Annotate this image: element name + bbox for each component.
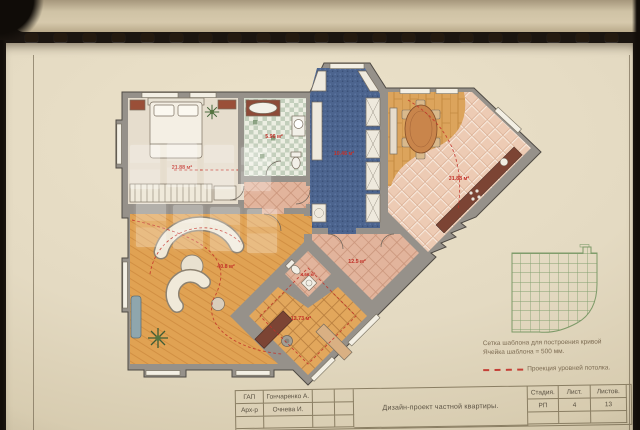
stamp-stage-label: Стадия.: [528, 386, 559, 399]
previous-page-edge: [14, 0, 640, 32]
binding-hole: [344, 33, 357, 42]
binding-hole: [431, 33, 444, 42]
binding-hole: [315, 33, 328, 42]
stamp-empty-cell: [236, 417, 264, 429]
binding-hole: [373, 33, 386, 42]
legend-ceiling-note: Проекция уровней потолка.: [527, 363, 610, 373]
stamp-empty-cell: [313, 403, 335, 416]
legend: Сетка шаблона для построения кривой Ячей…: [483, 337, 640, 374]
stamp-sheets-label: Листов.: [591, 385, 627, 399]
binding-hole: [605, 33, 618, 42]
photo-edge-left: [0, 40, 6, 430]
stamp-sheet-label: Лист.: [559, 386, 591, 400]
photo-corner-shadow: [0, 0, 46, 40]
binding-hole: [141, 33, 154, 42]
binding-hole: [170, 33, 183, 42]
stamp-sheet-value: 4: [559, 399, 591, 413]
binding-hole: [286, 33, 299, 42]
area-label-wc: 4.66 м²: [301, 272, 316, 277]
area-label-study: 12.73 м²: [291, 316, 312, 322]
stamp-sheets-value: 13: [591, 398, 627, 412]
sheet-frame-right: [629, 55, 630, 430]
stamp-empty-cell: [559, 412, 591, 425]
area-label-kitchen: 31.88 м²: [449, 176, 470, 182]
curve-template-grid: [511, 244, 603, 339]
stamp-stage-value: РП: [528, 399, 559, 412]
binding-hole: [228, 33, 241, 42]
stamp-empty-cell: [528, 412, 559, 424]
stamp-role1-label: ГАП: [236, 391, 264, 404]
binding-hole: [576, 33, 589, 42]
binding-hole: [460, 33, 473, 42]
binding-hole: [402, 33, 415, 42]
stamp-project-title: Дизайн-проект частной квартиры.: [354, 387, 529, 429]
ceiling-dash-sample: [483, 368, 523, 371]
stamp-role1-name: Гончаренко А.: [264, 390, 313, 404]
area-label-living: 40.8 м²: [217, 264, 235, 270]
stamp-role2-name: Очнева И.: [264, 403, 313, 417]
binding-hole: [112, 33, 125, 42]
binding-hole: [83, 33, 96, 42]
stamp-empty-cell: [313, 390, 335, 403]
stamp-empty-cell: [335, 415, 354, 427]
stamp-empty-cell: [591, 411, 627, 424]
stamp-empty-cell: [335, 402, 354, 415]
drawing-sheet: 21.88 м² 5.96 м² 10.46 м² 31.88 м² 40.8 …: [6, 43, 633, 430]
stamp-role2-label: Арх-р: [236, 404, 264, 417]
binding-hole: [54, 33, 67, 42]
binding-hole: [257, 33, 270, 42]
area-label-hall: 12.5 м²: [348, 259, 366, 265]
stamp-empty-cell: [264, 416, 313, 429]
binding-hole: [547, 33, 560, 42]
binding-hole: [518, 33, 531, 42]
legend-grid-note-line2: Ячейка шаблона = 500 мм.: [483, 346, 640, 357]
area-label-bathroom: 5.96 м²: [265, 134, 283, 140]
binding-hole: [199, 33, 212, 42]
sheet-frame-left: [33, 55, 34, 430]
stamp-empty-cell: [335, 389, 354, 402]
photo-of-drawing: 21.88 м² 5.96 м² 10.46 м² 31.88 м² 40.8 …: [0, 0, 640, 430]
stamp-empty-cell: [313, 416, 335, 428]
photo-edge-right: [632, 0, 640, 430]
area-label-dressing: 10.46 м²: [334, 151, 355, 157]
binding-hole: [489, 33, 502, 42]
title-block: ГАП Гончаренко А. Дизайн-проект частной …: [235, 384, 633, 430]
